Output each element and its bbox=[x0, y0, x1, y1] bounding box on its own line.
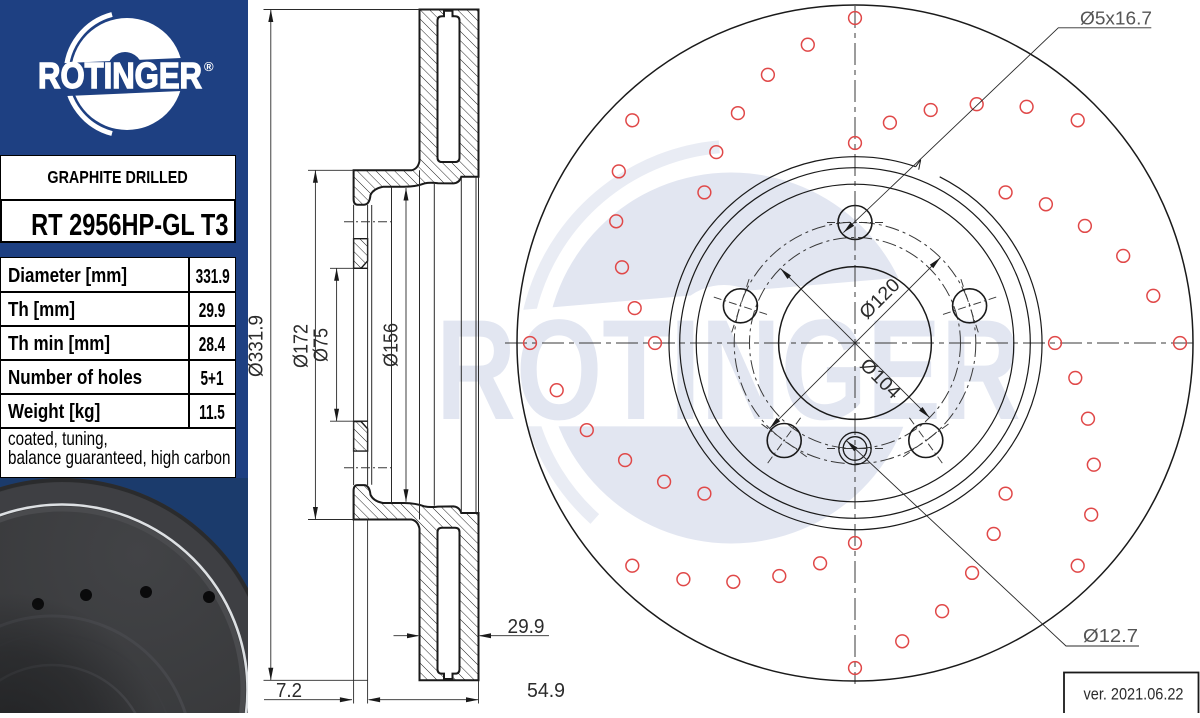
svg-text:7.2: 7.2 bbox=[276, 680, 302, 702]
svg-text:ver. 2021.06.22: ver. 2021.06.22 bbox=[1084, 685, 1184, 704]
svg-text:Ø12.7: Ø12.7 bbox=[1083, 626, 1138, 646]
svg-text:Ø75: Ø75 bbox=[311, 328, 333, 362]
svg-text:Ø172: Ø172 bbox=[291, 324, 313, 368]
svg-text:ROTINGER: ROTINGER bbox=[38, 55, 202, 96]
svg-text:54.9: 54.9 bbox=[527, 680, 565, 702]
svg-text:ROTINGER: ROTINGER bbox=[436, 291, 1021, 450]
svg-text:Ø331.9: Ø331.9 bbox=[246, 315, 268, 377]
svg-text:Ø5x16.7: Ø5x16.7 bbox=[1080, 9, 1152, 29]
svg-text:29.9: 29.9 bbox=[508, 616, 545, 638]
svg-text:Ø156: Ø156 bbox=[381, 323, 403, 367]
svg-text:®: ® bbox=[204, 59, 214, 74]
